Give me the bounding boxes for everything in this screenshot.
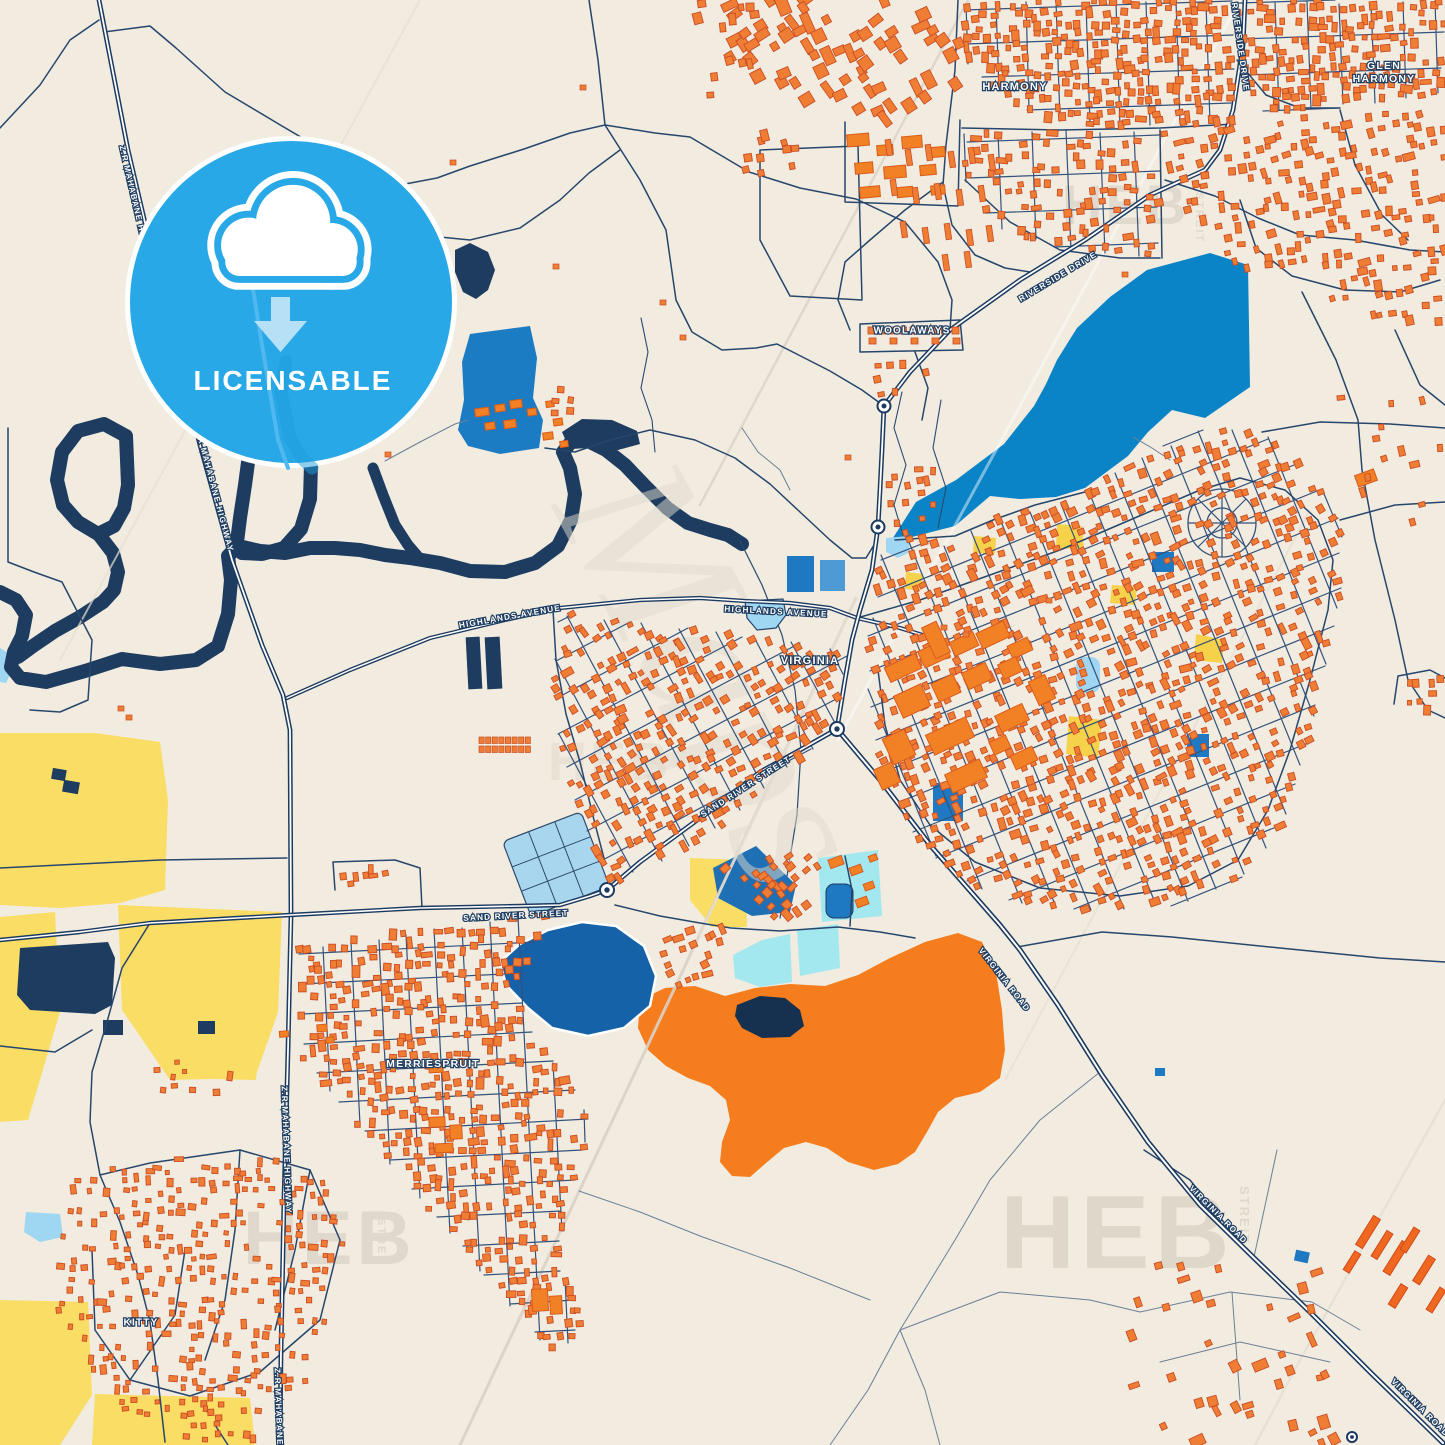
svg-text:MERRIESPRUIT: MERRIESPRUIT [386,1058,480,1070]
svg-text:GLEN: GLEN [1367,60,1401,72]
svg-text:VIRGINIA: VIRGINIA [781,655,840,667]
svg-text:LICENSABLE: LICENSABLE [194,365,393,396]
svg-text:HARMONY: HARMONY [982,81,1047,93]
svg-text:KITTY: KITTY [124,1318,159,1329]
svg-text:HARMONY: HARMONY [1353,73,1416,85]
svg-text:WOOLAWAYS: WOOLAWAYS [873,326,950,337]
svg-text:STRE: STRE [375,1218,387,1255]
